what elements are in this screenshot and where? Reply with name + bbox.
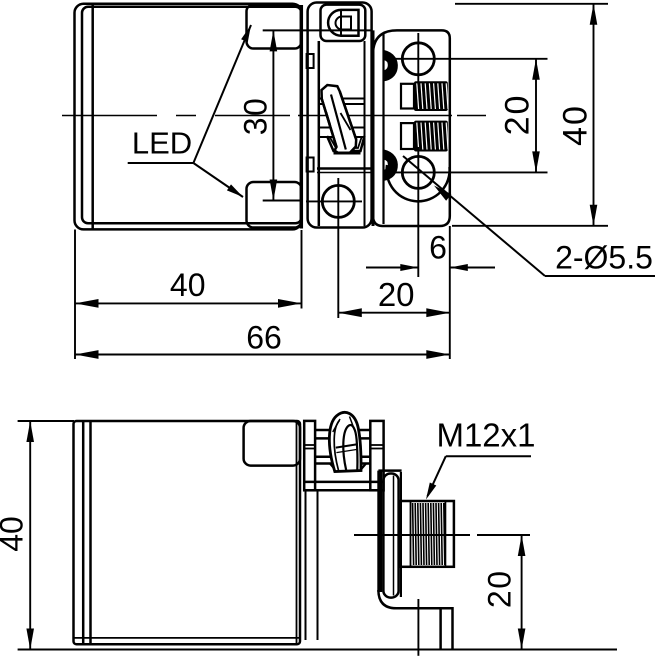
svg-text:2-Ø5.5: 2-Ø5.5 xyxy=(555,240,653,276)
svg-text:40: 40 xyxy=(557,104,595,146)
svg-text:40: 40 xyxy=(0,516,30,552)
svg-text:20: 20 xyxy=(378,276,415,313)
svg-text:40: 40 xyxy=(170,267,206,303)
svg-text:20: 20 xyxy=(482,570,518,609)
svg-text:20: 20 xyxy=(499,94,537,136)
svg-text:30: 30 xyxy=(238,97,274,136)
svg-text:LED: LED xyxy=(132,126,192,161)
svg-text:M12x1: M12x1 xyxy=(436,417,535,454)
svg-text:66: 66 xyxy=(246,320,282,356)
svg-text:6: 6 xyxy=(429,230,447,266)
